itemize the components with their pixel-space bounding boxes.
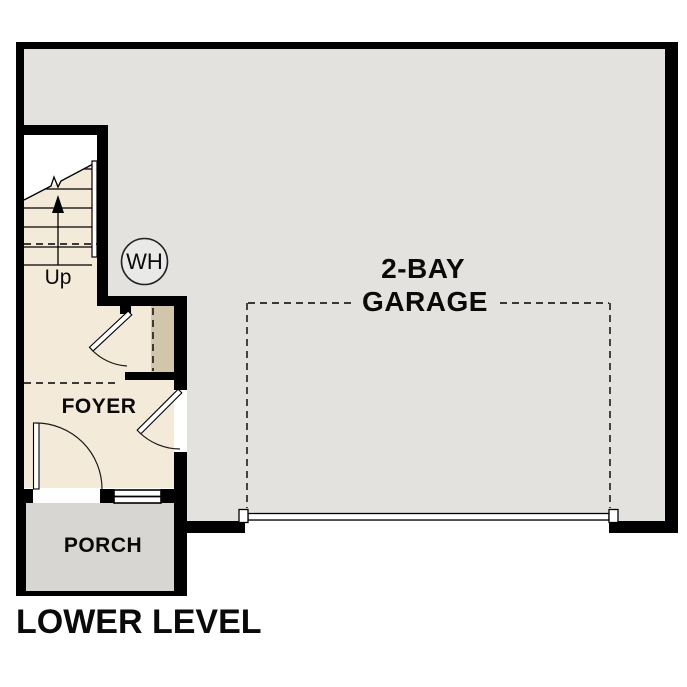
wall-porch-bottom xyxy=(16,591,187,596)
garage-label-line2: GARAGE xyxy=(362,286,488,317)
garage-label-line1: 2-BAY xyxy=(381,253,465,284)
wall-foyer-bottom-left xyxy=(16,489,33,503)
foyer-label: FOYER xyxy=(62,395,137,418)
wall-garage-foyer xyxy=(97,296,187,306)
foyer-window xyxy=(114,490,161,503)
wall-foyer-right-upper xyxy=(174,306,187,390)
garage-door-jamb-left xyxy=(239,510,248,523)
garage-floor-bottom xyxy=(187,296,665,521)
garage-door-panel xyxy=(248,514,609,521)
wall-bottom-right xyxy=(609,521,678,533)
wall-bottom-left-of-garage-door xyxy=(187,521,245,533)
wall-foyer-bottom-right xyxy=(161,489,187,503)
water-heater: WH xyxy=(122,239,168,285)
wall-left xyxy=(16,42,24,503)
wall-top xyxy=(16,42,678,49)
wall-porch-left xyxy=(16,503,26,596)
wall-foyer-bottom-mid xyxy=(100,489,114,503)
front-door-leaf xyxy=(34,423,40,489)
garage-door-jamb-right xyxy=(609,510,618,523)
wall-right xyxy=(665,42,678,533)
wall-foyer-right-lower xyxy=(174,452,187,596)
floor-plan-page: Up xyxy=(0,0,687,687)
water-heater-label: WH xyxy=(126,249,163,274)
porch-label: PORCH xyxy=(64,534,142,557)
wall-stairwell-top xyxy=(16,125,108,135)
stairs-up-label: Up xyxy=(45,266,72,289)
stair-handrail xyxy=(92,161,97,257)
mechanical-chase xyxy=(151,306,175,372)
wall-stairwell-right xyxy=(97,135,108,306)
floor-plan-title: LOWER LEVEL xyxy=(16,603,262,641)
floor-plan-svg: Up xyxy=(0,0,687,687)
garage-floor-top xyxy=(24,49,665,125)
